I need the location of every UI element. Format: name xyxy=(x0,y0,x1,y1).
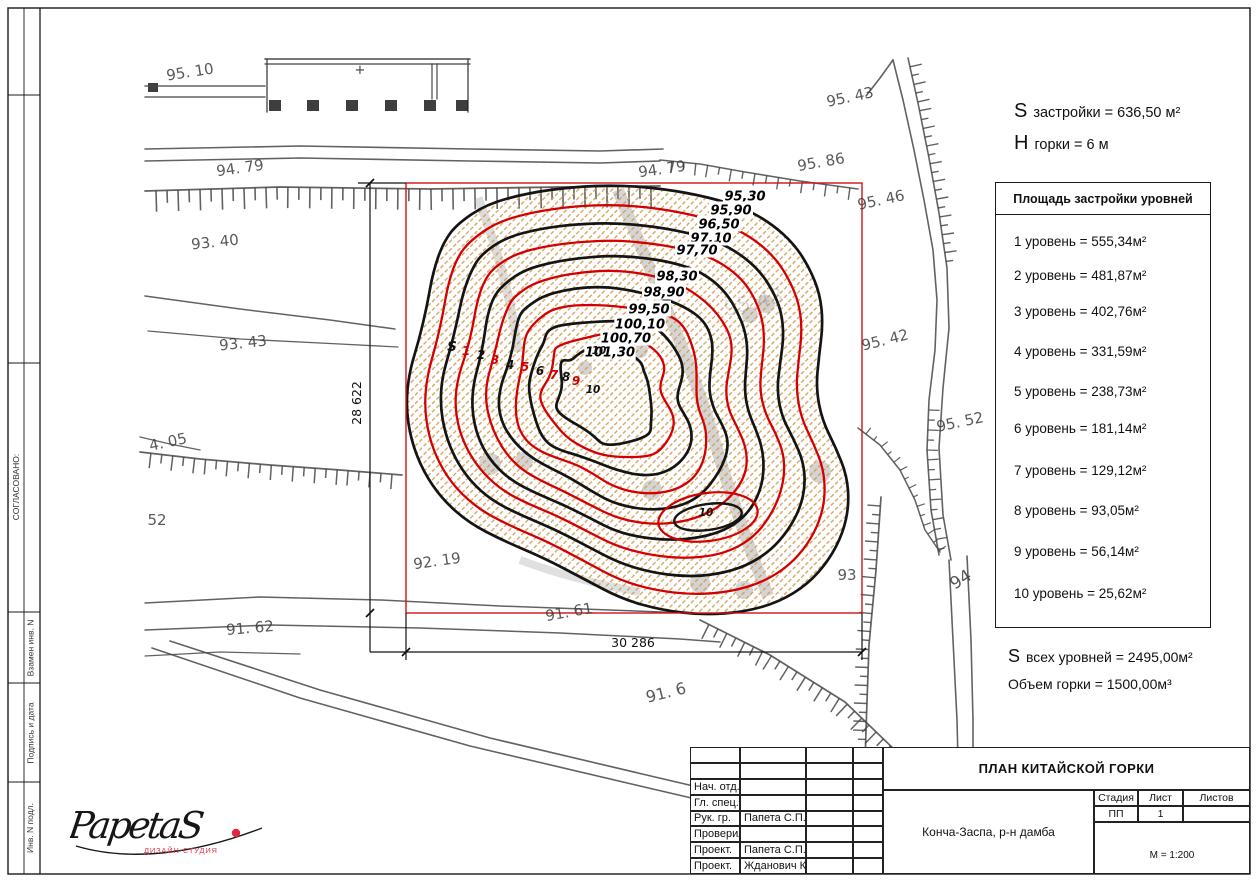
s-symbol: S xyxy=(1014,100,1027,123)
levels-table-body: 1 уровень = 555,34м²2 уровень = 481,87м²… xyxy=(995,215,1211,628)
svg-text:5: 5 xyxy=(521,360,529,374)
titleblock-signature-cell xyxy=(806,795,853,811)
titleblock-date-cell xyxy=(853,747,883,763)
stamp-label: Инв. N подл. xyxy=(23,785,37,871)
level-area-row: 4 уровень = 331,59м² xyxy=(1014,344,1146,359)
h-line: Н горки = 6 м xyxy=(1014,132,1180,155)
sheet-header: Лист xyxy=(1138,790,1183,806)
s-area-line: S застройки = 636,50 м² xyxy=(1014,100,1180,123)
h-symbol: Н xyxy=(1014,132,1028,155)
titleblock-date-cell xyxy=(853,858,883,874)
svg-text:95. 10: 95. 10 xyxy=(165,59,215,84)
svg-text:93. 43: 93. 43 xyxy=(218,332,267,355)
titleblock-date-cell xyxy=(853,826,883,842)
hill-volume-value: Объем горки = 1500,00м³ xyxy=(1008,676,1193,692)
svg-text:4: 4 xyxy=(505,358,514,372)
level-area-row: 8 уровень = 93,05м² xyxy=(1014,503,1139,518)
svg-text:99,50: 99,50 xyxy=(628,303,669,318)
sheets-value xyxy=(1183,806,1250,822)
titleblock-date-cell xyxy=(853,795,883,811)
project-location: Конча-Заспа, р-н дамба xyxy=(883,790,1094,874)
titleblock-role-cell xyxy=(690,747,740,763)
approved-label: СОГЛАСОВАНО: xyxy=(9,367,23,607)
level-area-row: 3 уровень = 402,76м² xyxy=(1014,304,1146,319)
level-area-row: 2 уровень = 481,87м² xyxy=(1014,268,1146,283)
titleblock-date-cell xyxy=(853,763,883,779)
width-dimension-label: 30 286 xyxy=(611,635,655,650)
logo-subtitle: ДИЗАЙН-СТУДИЯ xyxy=(144,846,218,855)
sheet-value: 1 xyxy=(1138,806,1183,822)
level-area-row: 7 уровень = 129,12м² xyxy=(1014,463,1146,478)
drawing-title: ПЛАН КИТАЙСКОЙ ГОРКИ xyxy=(883,747,1250,790)
titleblock-name-cell: Папета С.П. xyxy=(740,842,806,858)
stage-header: Стадия xyxy=(1094,790,1138,806)
titleblock-signature-cell xyxy=(806,858,853,874)
svg-text:1: 1 xyxy=(462,344,470,358)
svg-text:10: 10 xyxy=(586,384,601,396)
svg-text:3: 3 xyxy=(491,353,499,367)
titleblock-role-cell xyxy=(690,763,740,779)
sheets-header: Листов xyxy=(1183,790,1250,806)
build-stats: S застройки = 636,50 м² Н горки = 6 м xyxy=(1014,100,1180,164)
titleblock-signature-cell xyxy=(806,779,853,795)
svg-text:95. 43: 95. 43 xyxy=(825,83,875,111)
svg-text:S: S xyxy=(447,339,457,355)
titleblock-role-cell: Проект. xyxy=(690,842,740,858)
titleblock-role-cell: Проект. xyxy=(690,858,740,874)
titleblock-name-cell xyxy=(740,779,806,795)
titleblock-name-cell: Жданович К.С. xyxy=(740,858,806,874)
titleblock-signature-cell xyxy=(806,826,853,842)
height-dimension-label: 28 622 xyxy=(349,381,364,425)
benchmark-plus-mark: + xyxy=(355,63,366,78)
svg-text:98,30: 98,30 xyxy=(656,270,697,285)
titleblock-signature-cell xyxy=(806,747,853,763)
titleblock-name-cell xyxy=(740,747,806,763)
titleblock-role-cell: Проверил xyxy=(690,826,740,842)
total-area-line: S всех уровней = 2495,00м² xyxy=(1008,646,1193,667)
svg-text:98,90: 98,90 xyxy=(643,286,684,301)
titleblock-date-cell xyxy=(853,811,883,827)
svg-text:97,70: 97,70 xyxy=(676,244,717,259)
titleblock-name-cell xyxy=(740,763,806,779)
svg-text:4. 05: 4. 05 xyxy=(147,429,188,455)
svg-text:95. 52: 95. 52 xyxy=(935,408,985,436)
svg-text:6: 6 xyxy=(536,364,544,378)
level-area-row: 5 уровень = 238,73м² xyxy=(1014,384,1146,399)
titleblock-date-cell xyxy=(853,842,883,858)
titleblock-signature-cell xyxy=(806,763,853,779)
titleblock-role-cell: Нач. отд. xyxy=(690,779,740,795)
stage-value: ПП xyxy=(1094,806,1138,822)
stamp-label: Подпись и дата xyxy=(23,686,37,779)
svg-text:52: 52 xyxy=(147,511,166,529)
svg-text:95. 46: 95. 46 xyxy=(856,186,906,214)
totals: S всех уровней = 2495,00м² Объем горки =… xyxy=(1008,646,1193,692)
svg-text:93. 40: 93. 40 xyxy=(190,231,239,254)
hill-height-value: горки = 6 м xyxy=(1034,137,1108,153)
levels-table: Площадь застройки уровней горки 1 уровен… xyxy=(995,182,1211,628)
titleblock-signature-cell xyxy=(806,811,853,827)
svg-text:2: 2 xyxy=(477,348,485,362)
svg-text:9: 9 xyxy=(572,374,580,388)
titleblock-role-cell: Гл. спец. xyxy=(690,795,740,811)
logo-dot-icon xyxy=(232,829,240,837)
svg-text:95. 86: 95. 86 xyxy=(796,149,846,175)
svg-text:7: 7 xyxy=(550,368,559,382)
svg-text:91. 61: 91. 61 xyxy=(544,599,594,625)
level-area-row: 10 уровень = 25,62м² xyxy=(1014,586,1146,601)
svg-text:91. 6: 91. 6 xyxy=(644,678,688,706)
total-s-symbol: S xyxy=(1008,646,1020,667)
svg-text:92. 19: 92. 19 xyxy=(412,549,462,573)
studio-logo: PapetaS ДИЗАЙН-СТУДИЯ xyxy=(70,796,275,866)
titleblock-name-cell: Папета С.П. xyxy=(740,811,806,827)
titleblock-signature-cell xyxy=(806,842,853,858)
titleblock-date-cell xyxy=(853,779,883,795)
svg-text:94. 79: 94. 79 xyxy=(637,157,687,181)
svg-text:10: 10 xyxy=(592,345,607,357)
scale-note: М = 1:200 xyxy=(1094,822,1250,874)
s-area-value: застройки = 636,50 м² xyxy=(1033,105,1180,121)
level-area-row: 1 уровень = 555,34м² xyxy=(1014,234,1146,249)
level-area-row: 6 уровень = 181,14м² xyxy=(1014,421,1146,436)
svg-text:93: 93 xyxy=(837,566,856,584)
titleblock-name-cell xyxy=(740,795,806,811)
svg-text:8: 8 xyxy=(562,370,570,384)
titleblock-name-cell xyxy=(740,826,806,842)
stamp-label: Взамен инв. N xyxy=(23,615,37,680)
svg-text:95. 42: 95. 42 xyxy=(860,325,911,354)
title-block: Нач. отд.Гл. спец.Рук. гр.Папета С.П.Про… xyxy=(690,747,1250,874)
logo-name: PapetaS xyxy=(70,803,206,847)
total-area-value: всех уровней = 2495,00м² xyxy=(1026,649,1193,665)
titleblock-role-cell: Рук. гр. xyxy=(690,811,740,827)
level-area-row: 9 уровень = 56,14м² xyxy=(1014,544,1139,559)
levels-table-title: Площадь застройки уровней горки xyxy=(995,182,1211,215)
svg-text:10: 10 xyxy=(699,507,714,519)
svg-text:91. 62: 91. 62 xyxy=(225,617,274,639)
